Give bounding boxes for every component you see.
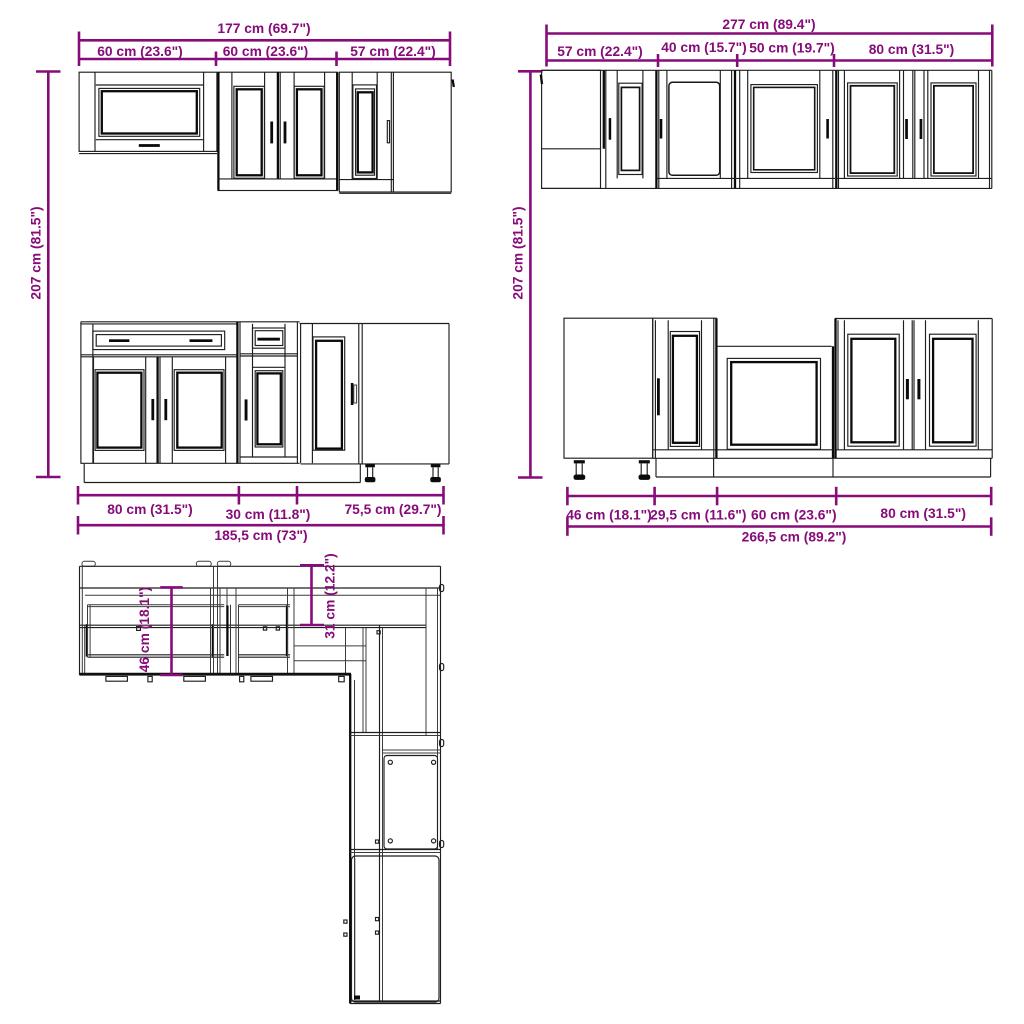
svg-text:60 cm (23.6"): 60 cm (23.6") xyxy=(223,44,309,59)
svg-text:46 cm (18.1"): 46 cm (18.1") xyxy=(566,508,652,523)
svg-text:60 cm (23.6"): 60 cm (23.6") xyxy=(751,508,837,523)
svg-text:80 cm (31.5"): 80 cm (31.5") xyxy=(880,506,966,521)
svg-text:177 cm (69.7"): 177 cm (69.7") xyxy=(217,21,310,36)
svg-text:30 cm (11.8"): 30 cm (11.8") xyxy=(226,507,311,522)
svg-text:31 cm (12.2"): 31 cm (12.2") xyxy=(323,553,338,639)
svg-text:207 cm (81.5"): 207 cm (81.5") xyxy=(511,206,526,299)
svg-text:80 cm (31.5"): 80 cm (31.5") xyxy=(869,42,955,57)
svg-text:57 cm (22.4"): 57 cm (22.4") xyxy=(557,44,643,59)
svg-text:46 cm (18.1"): 46 cm (18.1") xyxy=(137,587,152,673)
svg-text:75,5 cm (29.7"): 75,5 cm (29.7") xyxy=(344,502,441,517)
svg-text:57 cm (22.4"): 57 cm (22.4") xyxy=(350,44,436,59)
svg-text:60 cm (23.6"): 60 cm (23.6") xyxy=(97,44,183,59)
svg-text:80 cm (31.5"): 80 cm (31.5") xyxy=(107,502,193,517)
svg-text:185,5 cm (73"): 185,5 cm (73") xyxy=(214,528,307,543)
svg-text:277 cm (89.4"): 277 cm (89.4") xyxy=(722,17,815,32)
svg-text:29,5 cm (11.6"): 29,5 cm (11.6") xyxy=(650,508,746,523)
svg-text:40 cm (15.7"): 40 cm (15.7") xyxy=(661,40,747,55)
svg-text:266,5 cm (89.2"): 266,5 cm (89.2") xyxy=(742,530,847,545)
svg-text:50 cm (19.7"): 50 cm (19.7") xyxy=(749,41,835,56)
svg-text:207 cm (81.5"): 207 cm (81.5") xyxy=(29,206,44,299)
